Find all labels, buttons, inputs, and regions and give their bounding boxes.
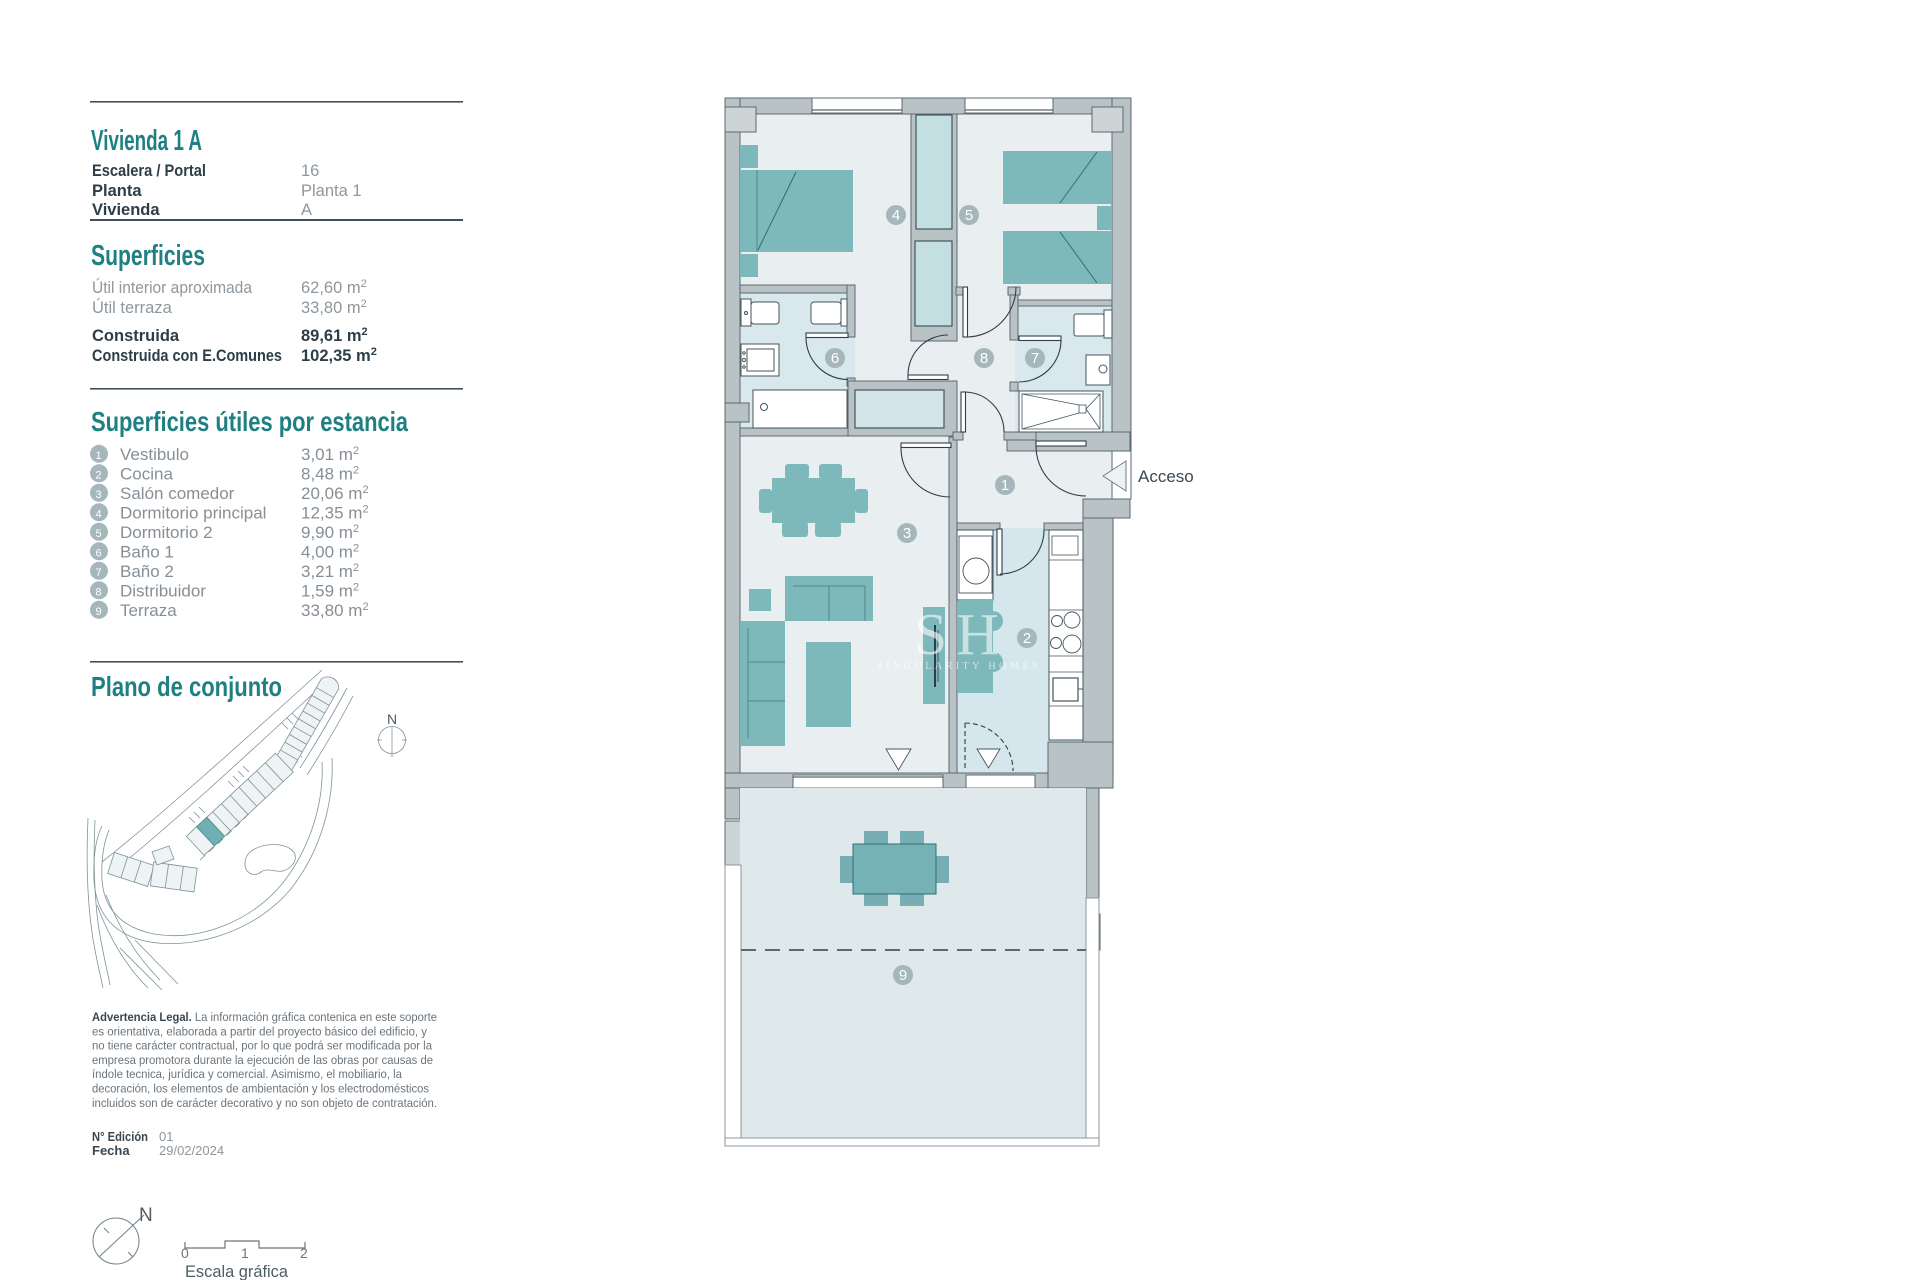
svg-text:5: 5 (965, 207, 973, 224)
svg-text:8: 8 (96, 586, 102, 598)
svg-text:Distribuidor: Distribuidor (120, 581, 206, 600)
svg-text:29/02/2024: 29/02/2024 (159, 1143, 224, 1158)
svg-text:decoración, los elementos de a: decoración, los elementos de ambientació… (92, 1082, 429, 1096)
svg-text:1,59 m2: 1,59 m2 (301, 581, 359, 600)
svg-text:4: 4 (96, 508, 102, 520)
svg-text:4: 4 (892, 207, 900, 224)
svg-text:Vivienda: Vivienda (92, 201, 160, 219)
svg-text:Planta: Planta (92, 182, 142, 200)
svg-text:2: 2 (96, 469, 102, 481)
svg-text:2: 2 (300, 1245, 308, 1261)
svg-text:Construida con E.Comunes: Construida con E.Comunes (92, 347, 282, 365)
svg-text:Superficies útiles por estanci: Superficies útiles por estancia (91, 406, 408, 437)
svg-text:01: 01 (159, 1129, 173, 1144)
svg-text:Construida: Construida (92, 327, 180, 345)
svg-text:Escalera / Portal: Escalera / Portal (92, 162, 206, 180)
svg-text:N: N (387, 711, 397, 727)
svg-text:89,61 m2: 89,61 m2 (301, 326, 368, 345)
svg-text:20,06 m2: 20,06 m2 (301, 484, 369, 503)
svg-text:es orientativa, elaborada a pa: es orientativa, elaborada a partir del p… (92, 1024, 428, 1038)
svg-text:Acceso: Acceso (1138, 467, 1194, 486)
svg-text:empresa promotora durante la e: empresa promotora durante la ejecución d… (92, 1053, 433, 1067)
svg-text:Planta 1: Planta 1 (301, 182, 362, 200)
svg-text:8: 8 (980, 350, 988, 367)
svg-text:3,21 m2: 3,21 m2 (301, 562, 359, 581)
svg-text:Dormitorio 2: Dormitorio 2 (120, 523, 213, 542)
svg-text:7: 7 (96, 567, 102, 579)
svg-text:33,80 m2: 33,80 m2 (301, 601, 369, 620)
svg-text:SH: SH (914, 601, 1007, 667)
svg-text:Baño 1: Baño 1 (120, 542, 174, 561)
svg-text:no tiene carácter contractual,: no tiene carácter contractual, por lo qu… (92, 1039, 432, 1053)
svg-text:SINGULARITY HOMES: SINGULARITY HOMES (877, 661, 1041, 672)
svg-text:102,35 m2: 102,35 m2 (301, 346, 377, 365)
svg-text:1: 1 (241, 1245, 249, 1261)
svg-text:A: A (301, 201, 312, 219)
svg-text:7: 7 (1031, 350, 1039, 367)
svg-text:Vivienda 1 A: Vivienda 1 A (91, 125, 202, 157)
svg-text:16: 16 (301, 162, 319, 180)
svg-text:8,48 m2: 8,48 m2 (301, 464, 359, 483)
svg-text:12,35 m2: 12,35 m2 (301, 503, 369, 522)
svg-text:9: 9 (96, 606, 102, 618)
svg-text:5: 5 (96, 528, 102, 540)
svg-text:3,01 m2: 3,01 m2 (301, 445, 359, 464)
svg-text:Terraza: Terraza (120, 601, 177, 620)
svg-text:Útil interior aproximada: Útil interior aproximada (92, 278, 253, 297)
svg-text:62,60 m2: 62,60 m2 (301, 278, 367, 297)
svg-text:3: 3 (903, 525, 911, 542)
svg-text:6: 6 (96, 547, 102, 559)
svg-text:4,00 m2: 4,00 m2 (301, 542, 359, 561)
svg-text:Salón comedor: Salón comedor (120, 484, 235, 503)
svg-text:1: 1 (1001, 477, 1009, 494)
svg-text:Vestibulo: Vestibulo (120, 445, 189, 464)
svg-text:Cocina: Cocina (120, 464, 173, 483)
svg-text:0: 0 (181, 1245, 189, 1261)
svg-text:3: 3 (96, 489, 102, 501)
svg-text:Escala gráfica: Escala gráfica (185, 1262, 289, 1280)
svg-text:9: 9 (899, 967, 907, 984)
svg-text:Fecha: Fecha (92, 1143, 130, 1158)
svg-text:incluidos son de carácter deco: incluidos son de carácter decorativo y n… (92, 1096, 437, 1110)
svg-text:Superficies: Superficies (91, 240, 205, 272)
svg-text:N: N (139, 1205, 153, 1226)
svg-text:índole tecnica, jurídica y com: índole tecnica, jurídica y comercial. As… (92, 1067, 402, 1081)
svg-text:1: 1 (96, 450, 102, 462)
svg-text:Plano de conjunto: Plano de conjunto (91, 671, 282, 702)
svg-text:Útil terraza: Útil terraza (92, 298, 173, 317)
svg-text:Advertencia Legal. La informac: Advertencia Legal. La información gráfic… (92, 1010, 437, 1024)
svg-text:Baño 2: Baño 2 (120, 562, 174, 581)
svg-text:33,80 m2: 33,80 m2 (301, 298, 367, 317)
svg-text:9,90 m2: 9,90 m2 (301, 523, 359, 542)
svg-text:2: 2 (1023, 630, 1031, 647)
svg-text:N° Edición: N° Edición (92, 1129, 148, 1144)
svg-text:Dormitorio principal: Dormitorio principal (120, 503, 266, 522)
svg-text:6: 6 (831, 350, 839, 367)
